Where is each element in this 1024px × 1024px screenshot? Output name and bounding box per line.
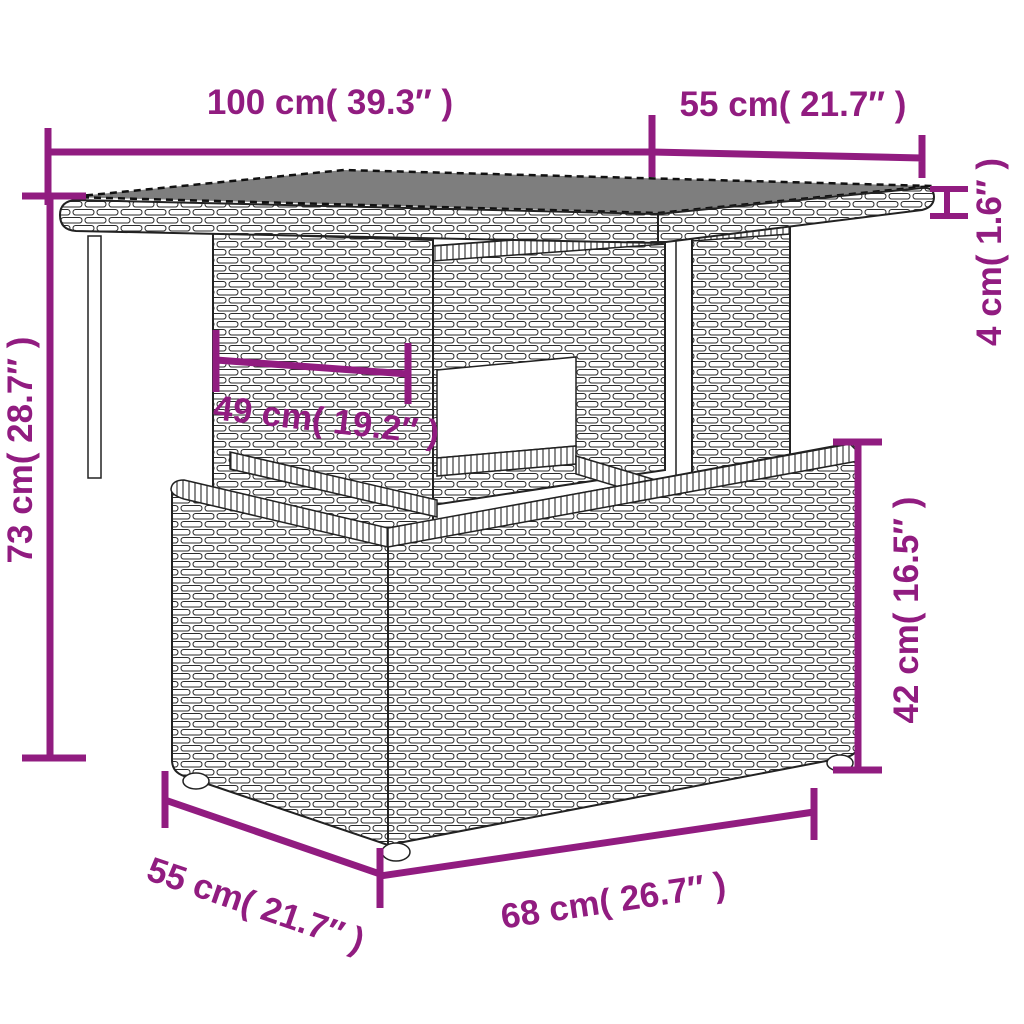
dimension-line-top-depth xyxy=(652,135,922,178)
dimension-line-top-thickness xyxy=(930,189,968,216)
dimension-label-box-width: 68 cm( 26.7″ ) xyxy=(498,865,728,937)
dimension-label-box-height: 42 cm( 16.5″ ) xyxy=(887,497,926,724)
dimension-diagram: 100 cm( 39.3″ ) 55 cm( 21.7″ ) 4 cm( 1.6… xyxy=(0,0,1024,1024)
dimension-label-top-thickness: 4 cm( 1.6″ ) xyxy=(970,158,1009,346)
table-rear-leg xyxy=(88,236,101,478)
under-table-opening xyxy=(437,357,576,458)
dimension-label-box-depth: 55 cm( 21.7″ ) xyxy=(142,850,369,961)
dimension-label-top-depth: 55 cm( 21.7″ ) xyxy=(680,85,907,124)
support-post xyxy=(676,226,692,504)
diagram-canvas: 100 cm( 39.3″ ) 55 cm( 21.7″ ) 4 cm( 1.6… xyxy=(0,0,1024,1024)
box-foot-left xyxy=(183,773,209,789)
dimension-label-total-height: 73 cm( 28.7″ ) xyxy=(1,337,40,564)
dimension-label-top-width: 100 cm( 39.3″ ) xyxy=(207,83,453,122)
box-foot-center xyxy=(382,843,410,861)
table-illustration xyxy=(60,170,934,861)
